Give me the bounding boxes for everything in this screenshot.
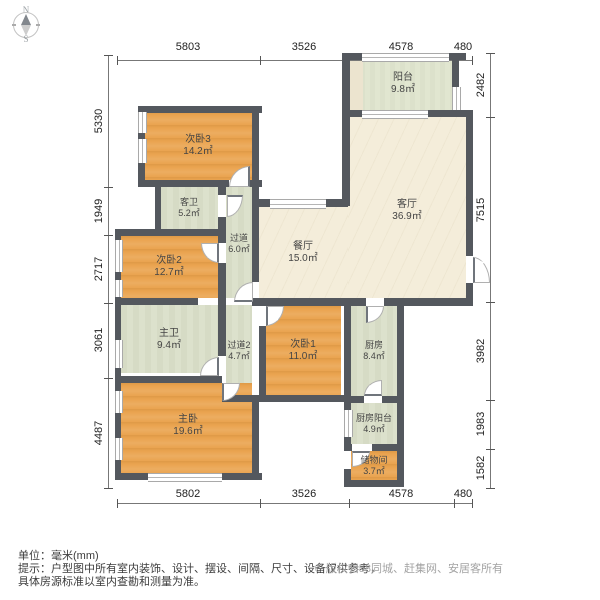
- label-dining: 餐厅 15.0㎡: [288, 241, 317, 265]
- dimension-tick: [260, 56, 261, 65]
- dim-right-3: 3982: [475, 339, 487, 363]
- compass-icon: N S: [10, 5, 42, 45]
- wall: [252, 199, 270, 207]
- label-kitchen-balcony: 厨房阳台 4.9㎡: [356, 413, 392, 435]
- dim-left-1: 5330: [93, 109, 105, 133]
- dim-bottom-4: 480: [454, 488, 472, 500]
- dimension-tick: [486, 488, 495, 489]
- dimension-tick: [486, 302, 495, 303]
- floorplan: 次卧3 14.2㎡ 客卫 5.2㎡ 过道 6.0㎡ 次卧2 12.7㎡ 主卫 9…: [0, 0, 600, 600]
- label-master-bedroom: 主卧 19.6㎡: [173, 414, 202, 438]
- window: [115, 340, 123, 368]
- dimension-tick: [104, 488, 113, 489]
- wall: [372, 444, 404, 451]
- wall: [252, 395, 259, 480]
- dimension-tick: [260, 499, 261, 508]
- window: [115, 280, 123, 297]
- dim-top-1: 5803: [176, 41, 200, 53]
- wall: [397, 298, 404, 487]
- label-bedroom1: 次卧1 11.0㎡: [289, 339, 318, 363]
- footer-tip-line2: 具体房源标准以室内查勘和测量为准。: [18, 573, 205, 589]
- wall: [466, 110, 473, 256]
- wall: [259, 326, 266, 402]
- dim-right-1: 2482: [475, 73, 487, 97]
- wall: [259, 298, 266, 306]
- dimension-tick: [486, 400, 495, 401]
- wall: [218, 305, 226, 356]
- wall: [342, 110, 362, 117]
- dimension-tick: [486, 53, 495, 54]
- dimension-tick: [104, 235, 113, 236]
- wall: [218, 180, 226, 195]
- wall: [218, 298, 226, 305]
- wall: [428, 110, 466, 117]
- dimension-tick: [117, 56, 118, 65]
- wall: [155, 180, 161, 236]
- window: [115, 240, 123, 272]
- dim-right-2: 7515: [475, 198, 487, 222]
- wall: [115, 229, 226, 236]
- window: [362, 53, 449, 62]
- wall: [252, 180, 259, 282]
- dimension-tick: [454, 499, 455, 508]
- dim-left-3: 2717: [93, 257, 105, 281]
- dimension-line: [108, 55, 109, 488]
- window: [148, 473, 222, 482]
- label-hallway2: 过道2 4.7㎡: [227, 340, 250, 362]
- compass-south-label: S: [23, 34, 28, 44]
- dim-top-2: 3526: [292, 41, 316, 53]
- dimension-tick: [486, 117, 495, 118]
- dim-left-5: 4487: [93, 421, 105, 445]
- wall: [138, 106, 262, 113]
- window: [452, 87, 461, 110]
- label-master-bath: 主卫 9.4㎡: [157, 328, 181, 352]
- wall: [344, 444, 351, 451]
- wall: [259, 395, 348, 402]
- dim-top-3: 4578: [389, 41, 413, 53]
- wall: [218, 217, 226, 243]
- dimension-tick: [104, 55, 113, 56]
- wall: [452, 53, 459, 87]
- window: [138, 139, 147, 163]
- window: [362, 110, 428, 119]
- wall: [382, 396, 404, 403]
- door-arc: [473, 257, 490, 283]
- wall: [342, 53, 350, 206]
- window: [270, 199, 326, 209]
- dimension-line: [490, 53, 491, 488]
- dim-bottom-2: 3526: [292, 488, 316, 500]
- balcony-cabinet: [350, 60, 363, 110]
- dimension-tick: [486, 449, 495, 450]
- wall: [252, 106, 259, 187]
- label-bedroom2: 次卧2 12.7㎡: [154, 255, 183, 279]
- window: [138, 112, 147, 133]
- dimension-tick: [349, 499, 350, 508]
- dim-right-4: 1983: [475, 412, 487, 436]
- footer-copyright: © 版权归58同城、赶集网、安居客所有: [315, 560, 503, 576]
- label-balcony: 阳台 9.8㎡: [391, 72, 415, 96]
- dim-bottom-3: 4578: [389, 488, 413, 500]
- label-storage: 储物间 3.7㎡: [360, 455, 387, 477]
- wall: [115, 298, 198, 305]
- wall: [344, 480, 404, 487]
- window: [115, 438, 123, 460]
- dim-right-5: 1582: [475, 456, 487, 480]
- wall: [115, 376, 222, 383]
- label-guest-bath: 客卫 5.2㎡: [178, 197, 200, 219]
- dimension-line: [117, 503, 472, 504]
- dim-left-4: 3061: [93, 328, 105, 352]
- wall: [342, 53, 362, 60]
- label-kitchen: 厨房 8.4㎡: [363, 340, 385, 362]
- dimension-tick: [472, 499, 473, 508]
- label-hallway: 过道 6.0㎡: [228, 233, 250, 255]
- dim-bottom-1: 5802: [176, 488, 200, 500]
- label-bedroom3: 次卧3 14.2㎡: [183, 134, 212, 158]
- dimension-tick: [104, 378, 113, 379]
- dimension-tick: [104, 187, 113, 188]
- dimension-tick: [104, 303, 113, 304]
- window: [344, 410, 353, 437]
- dim-left-2: 1949: [93, 199, 105, 223]
- wall: [344, 298, 351, 403]
- wall: [138, 180, 229, 187]
- dimension-tick: [117, 499, 118, 508]
- dim-top-4: 480: [454, 41, 472, 53]
- compass-needle-north: [21, 14, 31, 25]
- label-living: 客厅 36.9㎡: [392, 199, 421, 223]
- dimension-tick: [472, 56, 473, 65]
- window: [115, 391, 123, 413]
